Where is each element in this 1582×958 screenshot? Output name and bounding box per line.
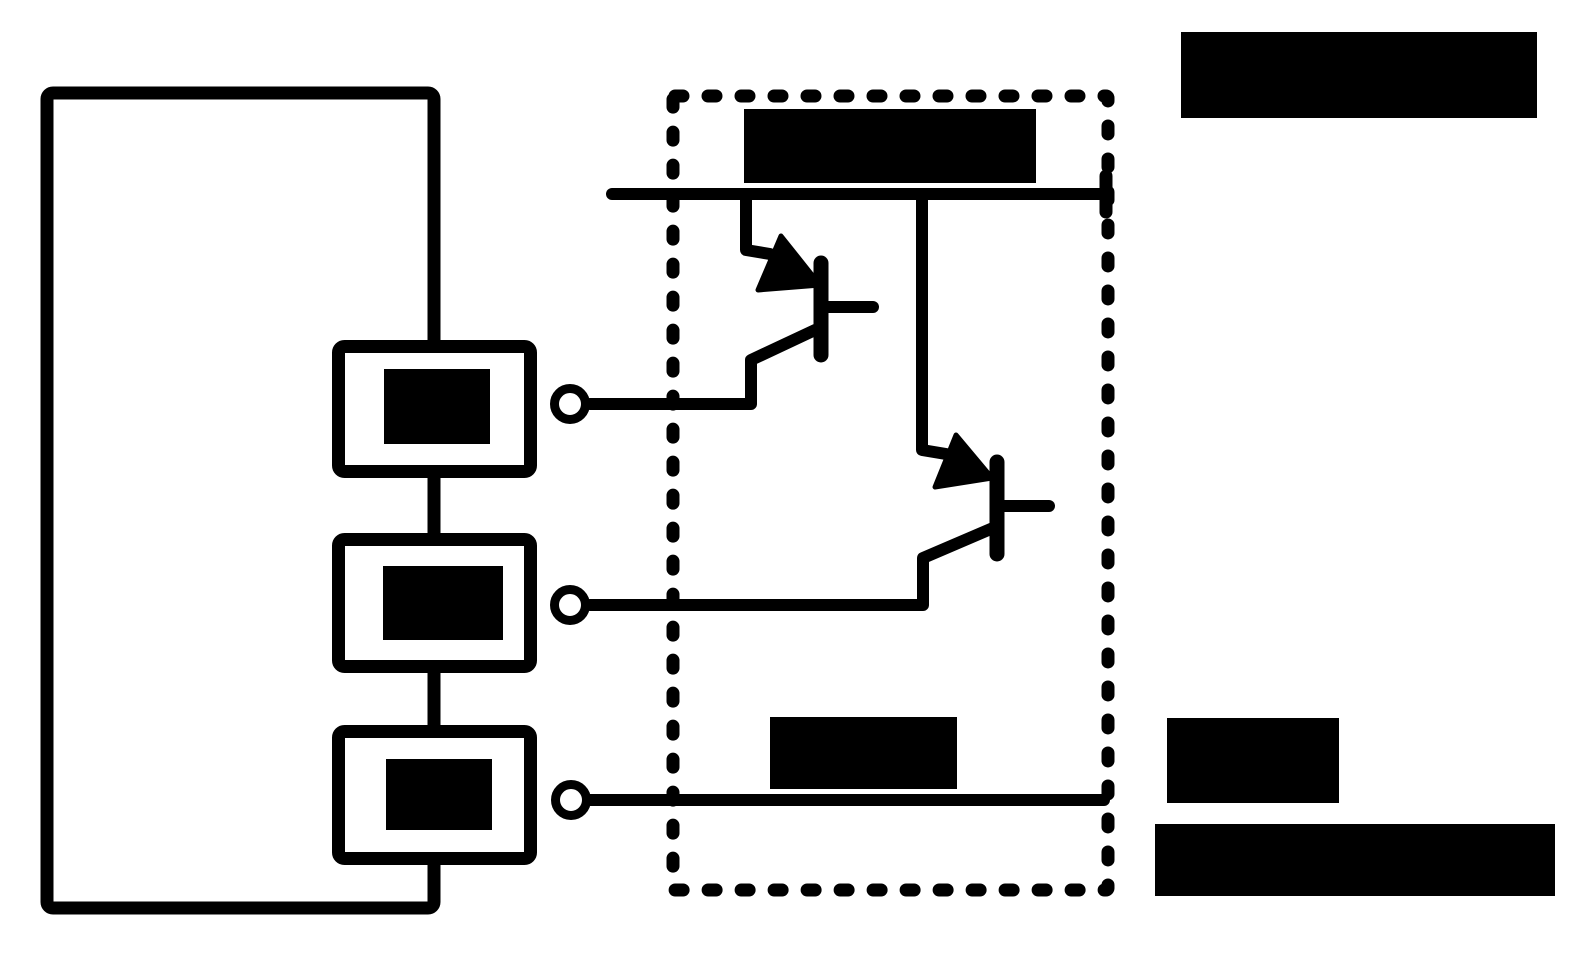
pin-module-2-redacted-label bbox=[383, 566, 503, 640]
redacted-label-driver-bottom bbox=[770, 717, 957, 789]
redacted-caption-line2 bbox=[1155, 824, 1555, 896]
diagram-canvas bbox=[0, 0, 1582, 958]
terminal-2-circle bbox=[555, 590, 586, 621]
terminal-3-circle bbox=[556, 785, 587, 816]
pin-module-1-redacted-label bbox=[384, 369, 490, 444]
redacted-caption-line1 bbox=[1167, 718, 1339, 803]
transistor1-collector-arrowhead bbox=[758, 236, 820, 290]
redacted-title-top-right bbox=[1181, 32, 1537, 118]
transistor2-emitter-lead bbox=[590, 528, 993, 605]
redacted-label-driver-top bbox=[744, 109, 1036, 183]
terminal-1-circle bbox=[555, 389, 586, 420]
circuit-diagram-page bbox=[0, 0, 1582, 958]
pin-module-3-redacted-label bbox=[386, 759, 492, 830]
transistor2-collector-lead bbox=[922, 194, 962, 464]
transistor2-collector-arrowhead bbox=[935, 435, 992, 487]
transistor1-emitter-lead bbox=[590, 330, 815, 404]
